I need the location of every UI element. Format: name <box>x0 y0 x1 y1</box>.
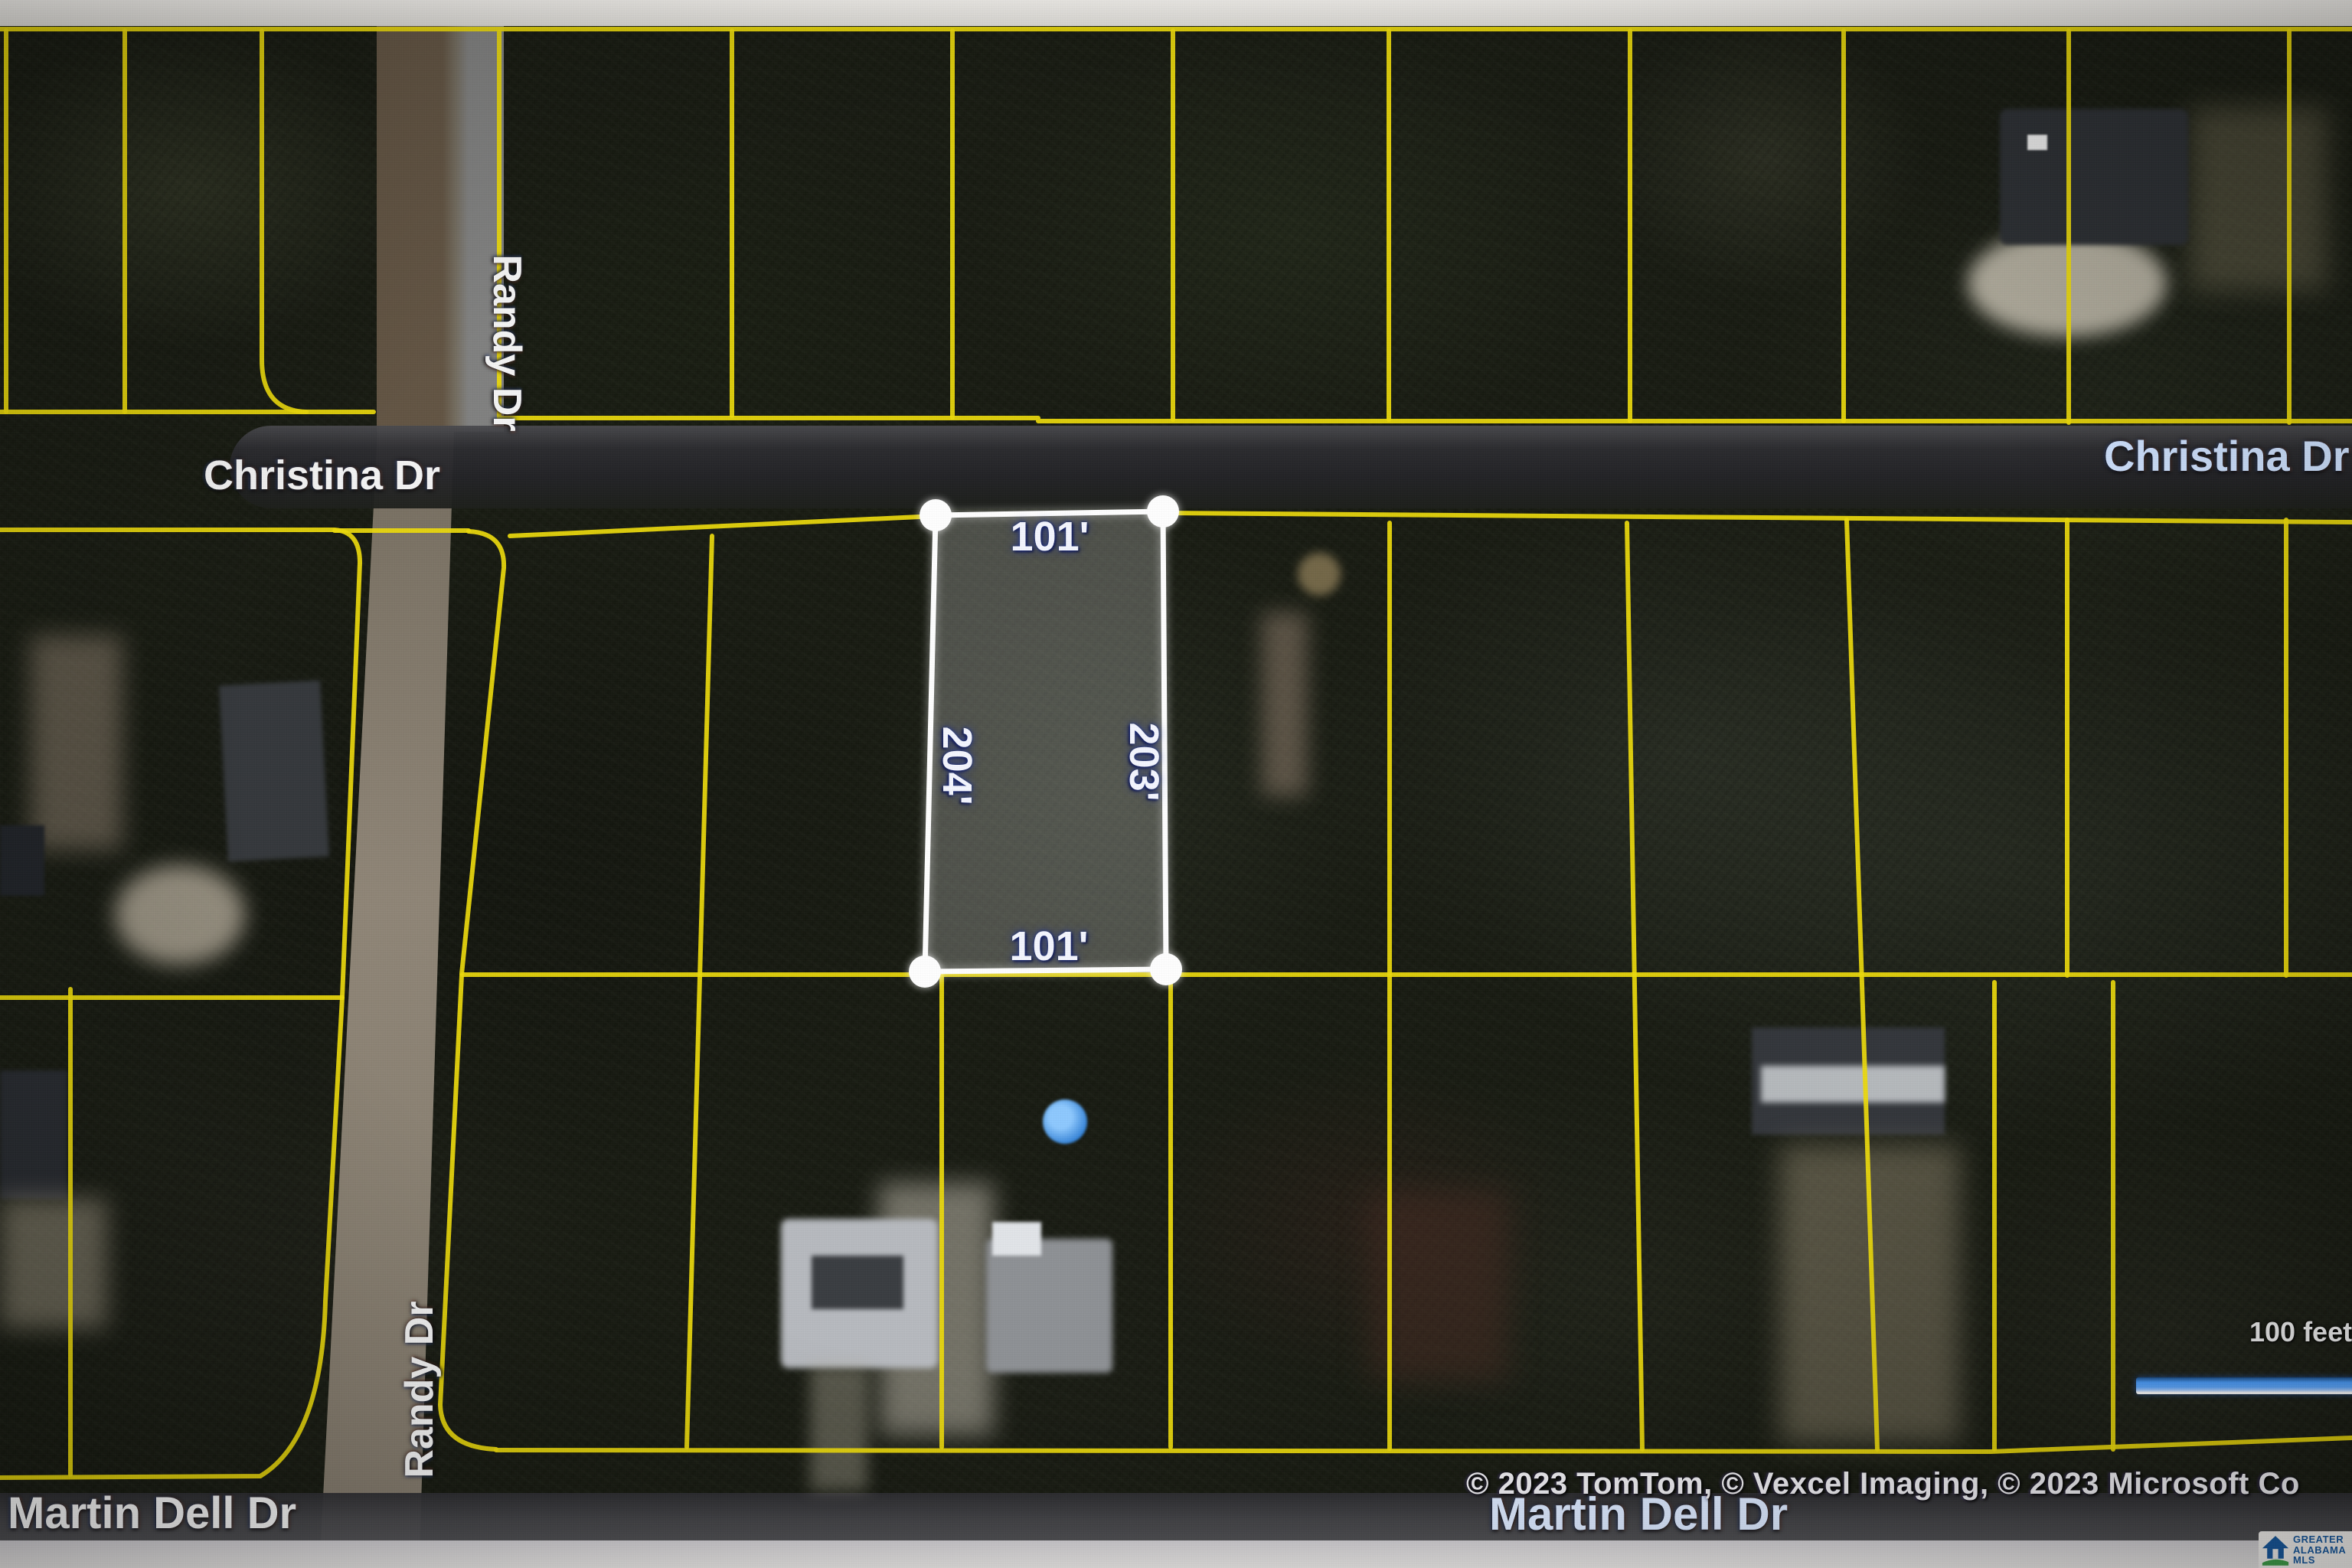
map-attribution: © 2023 TomTom, © Vexcel Imaging, © 2023 … <box>1466 1468 2300 1499</box>
mls-logo-line2: ALABAMA <box>2293 1545 2346 1556</box>
street-label-randy-dr-bottom: Randy Dr <box>400 1301 439 1478</box>
scale-bar-label: 100 feet <box>2249 1318 2352 1346</box>
street-label-christina-dr-left: Christina Dr <box>204 455 440 496</box>
screen-edge-top <box>0 0 2352 26</box>
mls-house-icon <box>2262 1534 2289 1566</box>
street-label-martin-dell-dr-left: Martin Dell Dr <box>8 1491 296 1536</box>
mls-logo-line3: MLS <box>2293 1555 2346 1566</box>
scale-bar <box>2136 1377 2352 1394</box>
selected-parcel-layer <box>0 0 2352 1568</box>
dimension-right: 203' <box>1123 723 1165 802</box>
street-label-randy-dr-top: Randy Dr <box>487 254 527 431</box>
street-label-christina-dr-right: Christina Dr <box>2104 435 2350 478</box>
map-viewport[interactable]: 101' 101' 204' 203' Randy Dr Randy Dr Ch… <box>0 0 2352 1568</box>
dimension-bottom: 101' <box>1010 926 1089 967</box>
greater-alabama-mls-logo: GREATER ALABAMA MLS <box>2259 1531 2352 1568</box>
screen-edge-bottom <box>0 1540 2352 1568</box>
mls-logo-line1: GREATER <box>2293 1534 2346 1545</box>
dimension-top: 101' <box>1011 516 1089 557</box>
parcel-handle-bottom-left[interactable] <box>909 955 941 988</box>
parcel-handle-top-right[interactable] <box>1147 495 1179 528</box>
parcel-handle-bottom-right[interactable] <box>1150 953 1182 985</box>
dimension-left: 204' <box>936 727 978 805</box>
parcel-handle-top-left[interactable] <box>920 499 952 531</box>
